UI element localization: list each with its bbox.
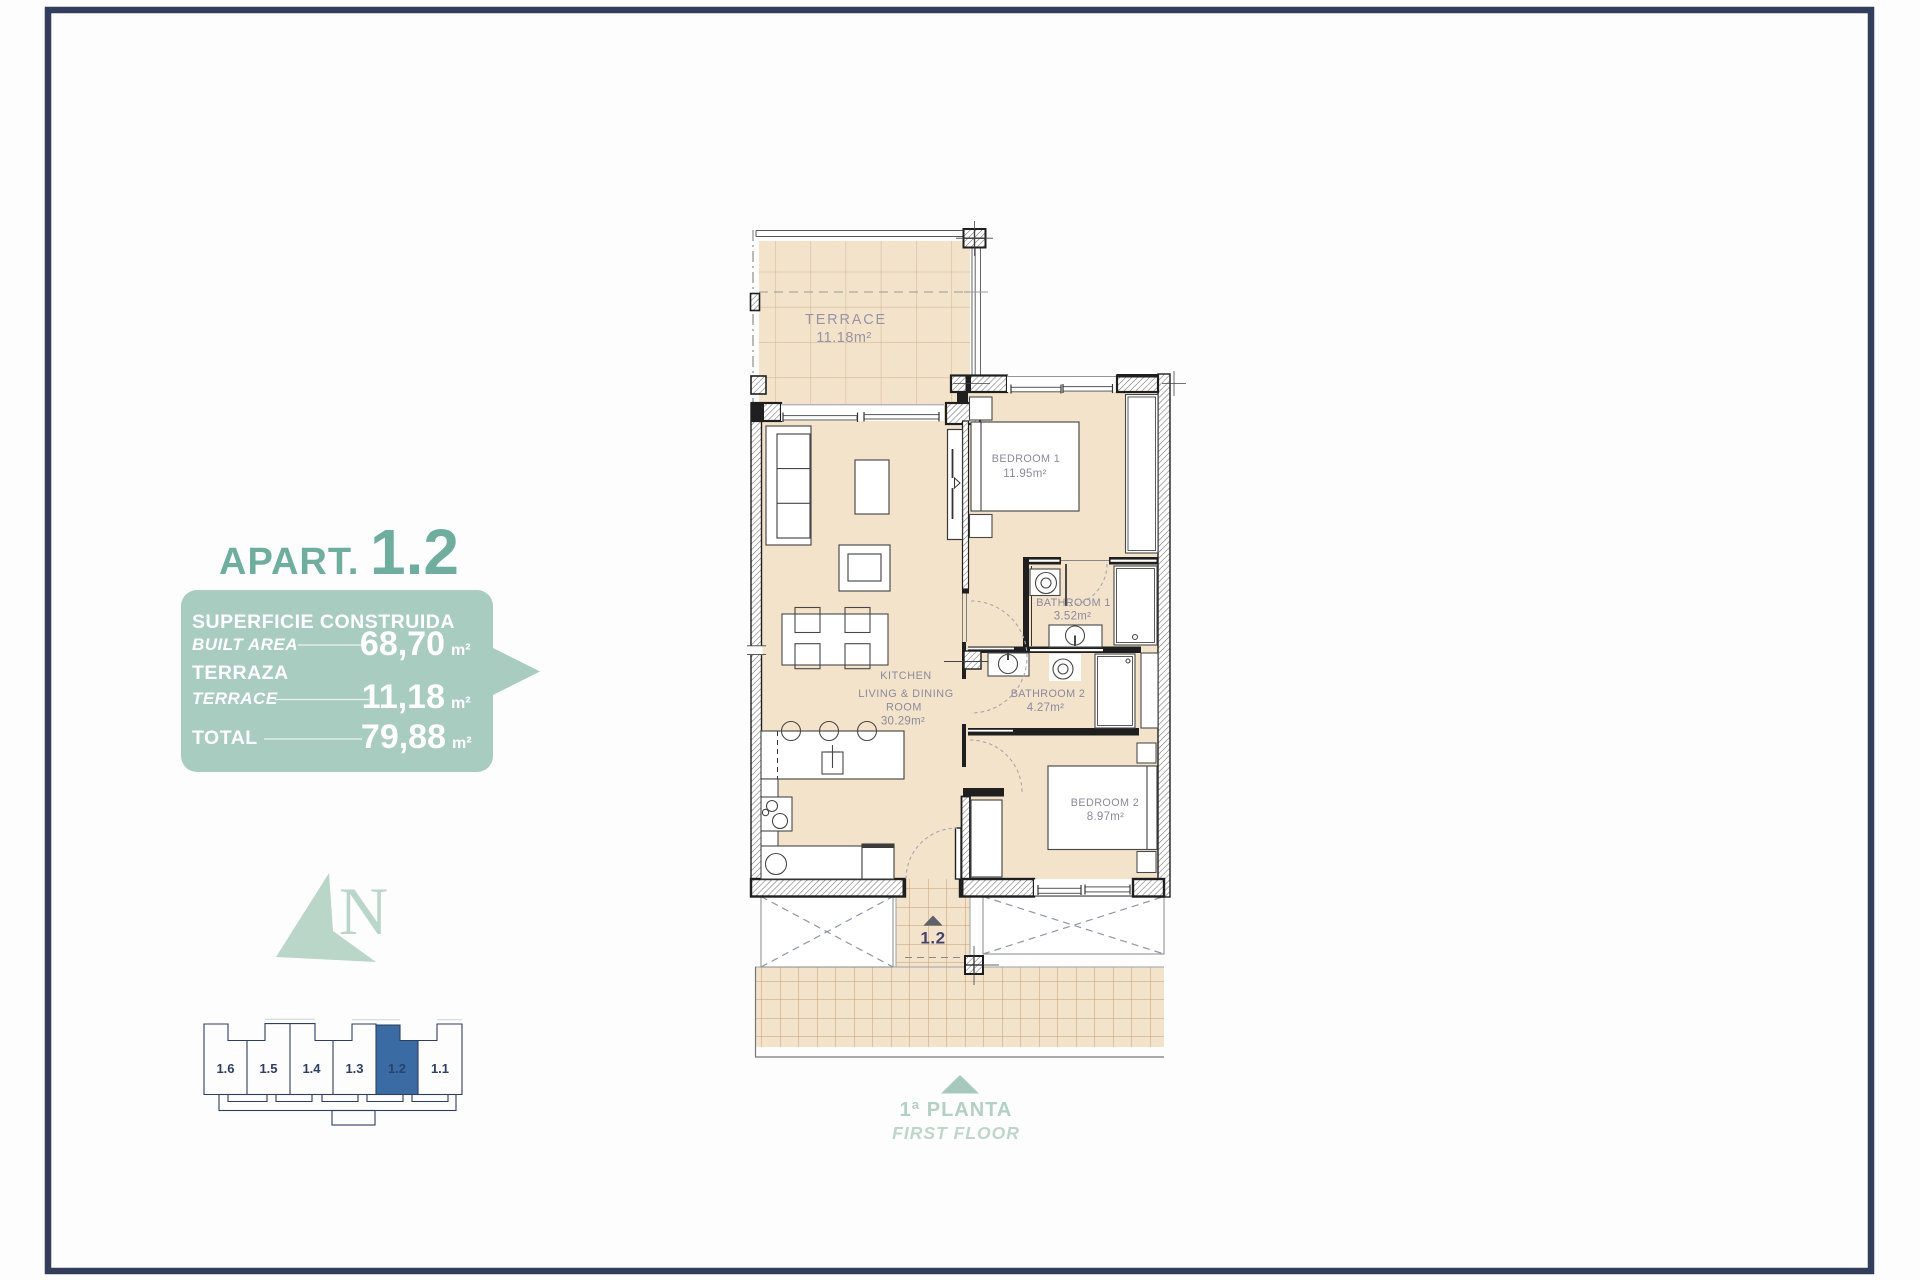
svg-text:1.6: 1.6 xyxy=(216,1061,234,1076)
svg-text:APART.: APART. xyxy=(219,541,359,583)
svg-text:30.29m²: 30.29m² xyxy=(881,716,925,728)
svg-text:1.5: 1.5 xyxy=(259,1061,277,1076)
svg-text:BEDROOM 2: BEDROOM 2 xyxy=(1071,797,1139,809)
svg-text:11.18m²: 11.18m² xyxy=(816,330,872,346)
svg-text:ROOM: ROOM xyxy=(886,702,922,714)
svg-text:N: N xyxy=(339,873,388,949)
svg-text:FIRST FLOOR: FIRST FLOOR xyxy=(892,1123,1020,1143)
svg-text:68,70: 68,70 xyxy=(360,625,445,663)
svg-text:TERRACE: TERRACE xyxy=(192,689,278,708)
svg-text:79,88: 79,88 xyxy=(361,718,446,756)
svg-text:3.52m²: 3.52m² xyxy=(1054,611,1092,623)
svg-text:BEDROOM 1: BEDROOM 1 xyxy=(992,453,1060,465)
svg-text:BATHROOM 2: BATHROOM 2 xyxy=(1011,688,1086,700)
svg-text:m²: m² xyxy=(451,642,471,659)
svg-text:LIVING & DINING: LIVING & DINING xyxy=(858,688,953,700)
svg-text:1.4: 1.4 xyxy=(302,1061,321,1076)
svg-text:11.95m²: 11.95m² xyxy=(1003,468,1046,480)
svg-text:1.1: 1.1 xyxy=(431,1061,449,1076)
svg-text:1ª PLANTA: 1ª PLANTA xyxy=(900,1099,1013,1121)
svg-text:1.2: 1.2 xyxy=(370,516,459,588)
svg-text:TERRAZA: TERRAZA xyxy=(192,662,289,684)
svg-text:TOTAL: TOTAL xyxy=(192,727,258,749)
svg-text:4.27m²: 4.27m² xyxy=(1027,702,1065,714)
svg-text:m²: m² xyxy=(451,695,471,712)
svg-text:8.97m²: 8.97m² xyxy=(1087,811,1125,823)
svg-text:m²: m² xyxy=(452,735,472,752)
svg-text:TERRACE: TERRACE xyxy=(805,312,887,328)
svg-text:BUILT AREA: BUILT AREA xyxy=(192,635,298,654)
svg-text:11,18: 11,18 xyxy=(362,678,445,716)
svg-text:1.3: 1.3 xyxy=(345,1061,363,1076)
svg-text:BATHROOM 1: BATHROOM 1 xyxy=(1036,597,1111,609)
svg-text:1.2: 1.2 xyxy=(920,929,945,948)
svg-text:1.2: 1.2 xyxy=(388,1061,406,1076)
svg-text:KITCHEN: KITCHEN xyxy=(880,670,932,682)
